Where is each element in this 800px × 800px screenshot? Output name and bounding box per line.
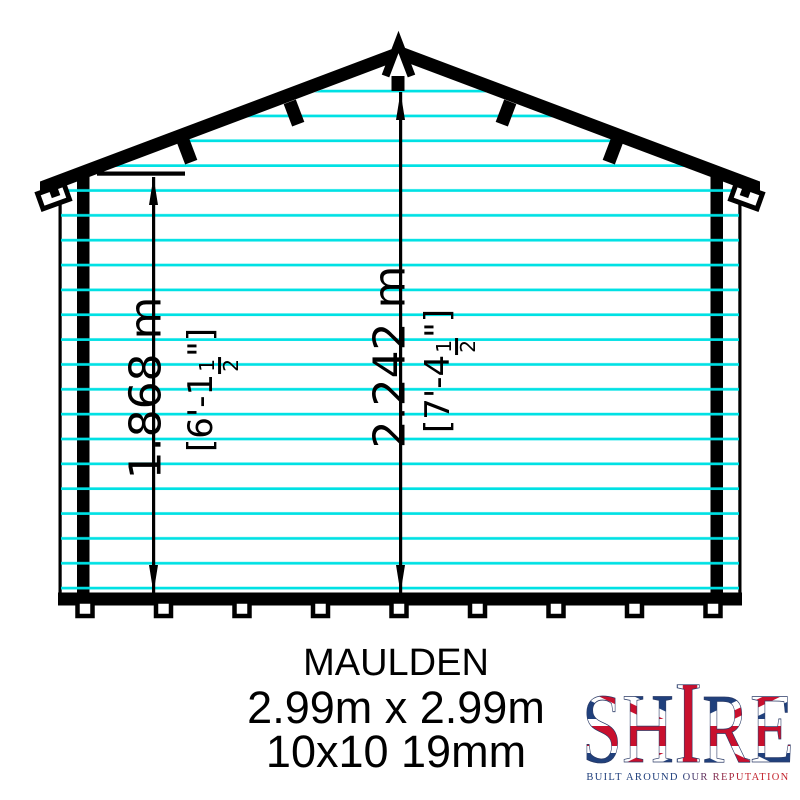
bearer-foot (156, 602, 171, 617)
eaves-dim-tick (97, 172, 185, 176)
ridge-imperial-open: [7'-4 (418, 355, 458, 433)
brand-letter: E (750, 684, 794, 784)
brand-letter: H (622, 684, 674, 784)
model-name: MAULDEN (0, 641, 792, 685)
roof-finial (386, 42, 412, 76)
shire-logo: SHIRE BUILT AROUND OUR REPUTATION (582, 684, 798, 788)
bearer-foot (392, 602, 407, 617)
ridge-imperial-close: "] (418, 309, 458, 338)
diagram-page: 1.868 m [6'-112"] 2.242 m [7'-412"] MAUL… (0, 0, 800, 800)
brand-letter: R (702, 684, 750, 784)
fraction-numerator: 1 (197, 357, 221, 374)
bearer-foot (549, 602, 564, 617)
eaves-imperial-fraction: 12 (197, 357, 243, 374)
brand-letter: S (582, 684, 622, 784)
bearer-foot (706, 602, 721, 617)
bearer-foot (313, 602, 328, 617)
eaves-imperial-open: [6'-1 (181, 374, 221, 452)
eaves-imperial-close: "] (181, 328, 221, 357)
ridge-imperial-fraction: 12 (434, 338, 480, 355)
brand-tagline: BUILT AROUND OUR REPUTATION (586, 772, 789, 783)
eaves-height-imperial-label: [6'-112"] (181, 328, 243, 452)
bearer-foot (627, 602, 642, 617)
fraction-denominator: 2 (459, 340, 480, 353)
ridge-height-metric-label: 2.242 m (365, 266, 416, 449)
bearer-foot (470, 602, 485, 617)
fraction-denominator: 2 (222, 359, 243, 372)
eaves-height-metric-label: 1.868 m (121, 297, 172, 480)
bearer-foot (235, 602, 250, 617)
ridge-height-imperial-label: [7'-412"] (418, 309, 480, 433)
bearer-foot (78, 602, 93, 617)
fraction-numerator: 1 (434, 338, 458, 355)
